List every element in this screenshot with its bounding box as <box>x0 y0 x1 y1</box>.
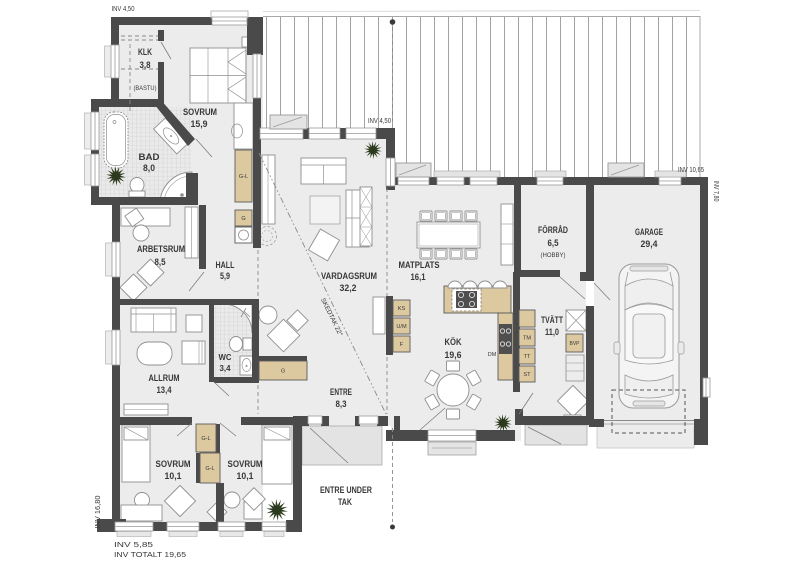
svg-text:5,9: 5,9 <box>220 271 230 281</box>
svg-text:FÖRRÅD: FÖRRÅD <box>538 225 568 236</box>
svg-text:15,9: 15,9 <box>191 119 208 129</box>
svg-text:ENTRE: ENTRE <box>330 387 352 398</box>
svg-text:10,1: 10,1 <box>237 471 254 481</box>
svg-text:SOVRUM: SOVRUM <box>156 459 191 470</box>
svg-text:3,4: 3,4 <box>220 364 232 373</box>
svg-text:(HOBBY): (HOBBY) <box>541 252 566 259</box>
svg-text:8,5: 8,5 <box>155 257 166 267</box>
svg-text:TVÄTT: TVÄTT <box>541 315 563 326</box>
svg-text:8,3: 8,3 <box>336 399 347 409</box>
svg-text:(BASTU): (BASTU) <box>134 85 157 92</box>
svg-text:BAD: BAD <box>139 152 160 163</box>
svg-text:G-L: G-L <box>239 174 248 180</box>
svg-text:32,2: 32,2 <box>340 283 357 293</box>
svg-text:KS: KS <box>398 306 406 312</box>
svg-text:U/M: U/M <box>396 324 407 330</box>
svg-text:VARDAGSRUM: VARDAGSRUM <box>321 271 377 282</box>
svg-text:TAK: TAK <box>338 497 352 508</box>
svg-text:INV 7,80: INV 7,80 <box>712 181 719 202</box>
svg-text:G: G <box>241 216 245 222</box>
svg-text:KÖK: KÖK <box>445 337 462 348</box>
svg-text:3,8: 3,8 <box>140 60 151 70</box>
svg-text:16,1: 16,1 <box>411 272 426 282</box>
svg-text:10,1: 10,1 <box>165 471 182 481</box>
svg-text:19,6: 19,6 <box>445 350 462 360</box>
svg-text:DM: DM <box>488 352 497 358</box>
svg-text:GARAGE: GARAGE <box>635 227 663 238</box>
svg-text:F: F <box>400 342 404 348</box>
svg-text:6,5: 6,5 <box>548 238 559 248</box>
svg-text:G-L: G-L <box>201 436 210 442</box>
svg-text:G-L: G-L <box>205 466 214 472</box>
svg-text:INV 4,50: INV 4,50 <box>368 118 391 125</box>
svg-text:13,4: 13,4 <box>157 385 172 395</box>
svg-text:TT: TT <box>524 354 531 360</box>
svg-text:ST: ST <box>523 372 531 378</box>
svg-text:29,4: 29,4 <box>641 239 658 249</box>
svg-text:8,0: 8,0 <box>143 163 155 173</box>
svg-text:SOVRUM: SOVRUM <box>183 107 217 118</box>
svg-text:ENTRE UNDER: ENTRE UNDER <box>320 485 372 496</box>
svg-text:G: G <box>281 369 285 375</box>
svg-text:INV TOTALT 19,65: INV TOTALT 19,65 <box>114 550 186 559</box>
svg-text:INV 4,50: INV 4,50 <box>112 6 135 13</box>
svg-text:ARBETSRUM: ARBETSRUM <box>137 244 185 255</box>
svg-text:WC: WC <box>219 353 232 362</box>
svg-text:HALL: HALL <box>216 260 235 271</box>
svg-text:MATPLATS: MATPLATS <box>399 260 440 271</box>
svg-text:KLK: KLK <box>138 47 152 58</box>
svg-text:SOVRUM: SOVRUM <box>228 459 263 470</box>
svg-text:TM: TM <box>523 336 531 342</box>
svg-text:INV 5,85: INV 5,85 <box>114 540 153 549</box>
svg-text:11,0: 11,0 <box>545 327 559 337</box>
svg-text:INV 10,65: INV 10,65 <box>678 167 704 174</box>
svg-text:ALLRUM: ALLRUM <box>149 373 180 384</box>
svg-text:BVP: BVP <box>569 341 580 347</box>
svg-text:INV 16,80: INV 16,80 <box>95 495 102 528</box>
